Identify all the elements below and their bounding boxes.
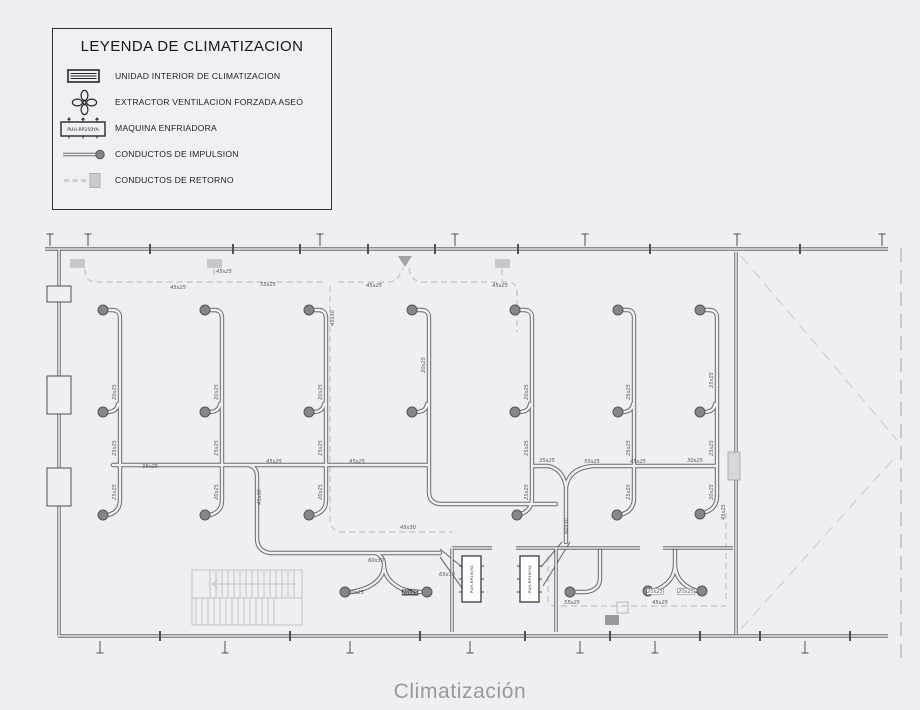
diffuser-circle <box>510 305 520 315</box>
legend-box: LEYENDA DE CLIMATIZACION UNIDAD INTERIOR… <box>52 28 332 210</box>
duct-size-label: 45x25 <box>721 504 727 520</box>
legend-item-label: EXTRACTOR VENTILACION FORZADA ASEO <box>115 97 303 107</box>
duct-size-label: 45x30 <box>400 525 416 531</box>
diffuser-circle <box>512 510 522 520</box>
duct-size-label: 30x25 <box>687 458 703 464</box>
duct-size-label: 25x25 <box>524 484 530 500</box>
duct-size-label: 25x25 <box>709 372 715 388</box>
duct-size-label: 45x25 <box>652 600 668 606</box>
duct-size-label: 20x25 <box>421 357 427 373</box>
duct-size-label: 20x25 <box>678 589 694 595</box>
duct-size-label: 20x25 <box>318 484 324 500</box>
duct-size-label: 20x25 <box>709 484 715 500</box>
duct-size-label: 25x25 <box>524 440 530 456</box>
legend-item-label: CONDUCTOS DE RETORNO <box>115 175 234 185</box>
chiller-unit: PUH-RP250YA <box>517 556 542 602</box>
duct-size-label: 25x25 <box>214 440 220 456</box>
duct-size-label: 55x25 <box>260 282 276 288</box>
diffuser-circle <box>98 305 108 315</box>
column-ticks-bottom <box>97 641 809 653</box>
duct-size-label: 20x25 <box>318 384 324 400</box>
duct-size-label: 20x25 <box>214 384 220 400</box>
diffuser-circle <box>697 586 707 596</box>
duct-size-label: 20x25 <box>402 590 418 596</box>
staircase <box>192 570 302 625</box>
legend-item-label: CONDUCTOS DE IMPULSION <box>115 149 239 159</box>
return-grille <box>495 259 510 268</box>
duct-size-label: 45x25 <box>630 459 646 465</box>
indoor-unit-icon <box>53 68 115 85</box>
wall-cross-ticks <box>150 244 850 641</box>
diffuser-circle <box>422 587 432 597</box>
drawing-caption: Climatización <box>0 680 920 704</box>
diffuser-circle <box>304 510 314 520</box>
diffuser-circle <box>612 510 622 520</box>
zone-diagonal-lines <box>741 256 897 629</box>
legend-item-indoor-unit: UNIDAD INTERIOR DE CLIMATIZACION <box>53 63 331 89</box>
diffuser-circle <box>565 587 575 597</box>
diffuser-circle <box>98 510 108 520</box>
diffuser-circle <box>304 407 314 417</box>
left-wall-window <box>47 376 71 414</box>
left-wall-window <box>47 468 71 506</box>
duct-size-label: 60x30 <box>564 518 570 534</box>
diffuser-circle <box>695 305 705 315</box>
chiller-icon: PUH-RP250YA <box>53 117 115 139</box>
diffuser-circle <box>200 305 210 315</box>
right-zone <box>741 248 901 662</box>
diffuser-circle <box>613 407 623 417</box>
duct-size-label: 45x30 <box>257 489 263 505</box>
return-grille <box>207 259 222 268</box>
duct-size-label: 20x25 <box>524 384 530 400</box>
duct-size-label: 35x25 <box>142 464 158 470</box>
duct-size-label: 20x25 <box>647 589 663 595</box>
duct-size-label: 45x25 <box>349 459 365 465</box>
duct-size-label: 25x25 <box>318 440 324 456</box>
duct-size-label: 20x25 <box>112 384 118 400</box>
return-grille-triangle <box>398 256 412 267</box>
drawing-page: PUH-RP250YAPUH-RP250YA 45x2555x2545x2545… <box>0 0 920 710</box>
left-wall-window <box>47 286 71 302</box>
column-ticks-top <box>47 234 886 246</box>
diffuser-circle <box>407 407 417 417</box>
duct-size-label: 25x25 <box>709 440 715 456</box>
diffuser-circle <box>695 509 705 519</box>
supply-duct-icon <box>53 148 115 161</box>
legend-item-label: MAQUINA ENFRIADORA <box>115 123 217 133</box>
chiller-model-text: PUH-RP250YA <box>528 565 532 593</box>
duct-size-label: 65x30 <box>439 572 455 578</box>
duct-size-label: 25x25 <box>626 440 632 456</box>
duct-size-label: 45x25 <box>492 283 508 289</box>
door-right-wall <box>728 452 740 480</box>
duct-size-label: 55x25 <box>564 600 580 606</box>
duct-size-label: 45x25 <box>170 285 186 291</box>
duct-size-label: 45x25 <box>216 269 232 275</box>
extractor-unit <box>605 615 619 625</box>
diffuser-circle <box>98 407 108 417</box>
duct-size-label: 55x25 <box>584 459 600 465</box>
duct-size-label: 45x25 <box>366 283 382 289</box>
duct-size-label: 60x30 <box>368 558 384 564</box>
duct-size-label: 25x25 <box>626 484 632 500</box>
chiller-model-text: PUH-RP250YA <box>470 565 474 593</box>
diffuser-circle <box>200 407 210 417</box>
duct-size-label: 20x25 <box>214 484 220 500</box>
legend-item-supply-duct: CONDUCTOS DE IMPULSION <box>53 141 331 167</box>
duct-size-label: 45x30 <box>330 310 336 326</box>
return-grille <box>70 259 85 268</box>
duct-size-label: 25x25 <box>112 440 118 456</box>
chiller-unit: PUH-RP250YA <box>459 556 484 602</box>
legend-item-chiller: PUH-RP250YA MAQUINA ENFRIADORA <box>53 115 331 141</box>
fan-extractor-icon <box>53 89 115 116</box>
duct-size-label: 45x25 <box>266 459 282 465</box>
chiller-model-text: PUH-RP250YA <box>67 127 99 133</box>
diffuser-circle <box>200 510 210 520</box>
diffuser-circle <box>304 305 314 315</box>
return-duct-icon <box>53 171 115 190</box>
legend-item-extractor: EXTRACTOR VENTILACION FORZADA ASEO <box>53 89 331 115</box>
duct-size-label: 35x25 <box>539 458 555 464</box>
diffuser-circle <box>695 407 705 417</box>
diffuser-circle <box>510 407 520 417</box>
fixture-outline <box>617 602 628 613</box>
legend-title: LEYENDA DE CLIMATIZACION <box>53 38 331 55</box>
duct-size-label: 25x25 <box>112 484 118 500</box>
duct-size-label: 20x25 <box>348 590 364 596</box>
duct-size-label: 25x25 <box>626 384 632 400</box>
diffuser-circle <box>407 305 417 315</box>
diffuser-circle <box>613 305 623 315</box>
machines-group: PUH-RP250YAPUH-RP250YA <box>459 556 542 602</box>
legend-item-label: UNIDAD INTERIOR DE CLIMATIZACION <box>115 71 280 81</box>
legend-item-return-duct: CONDUCTOS DE RETORNO <box>53 167 331 193</box>
